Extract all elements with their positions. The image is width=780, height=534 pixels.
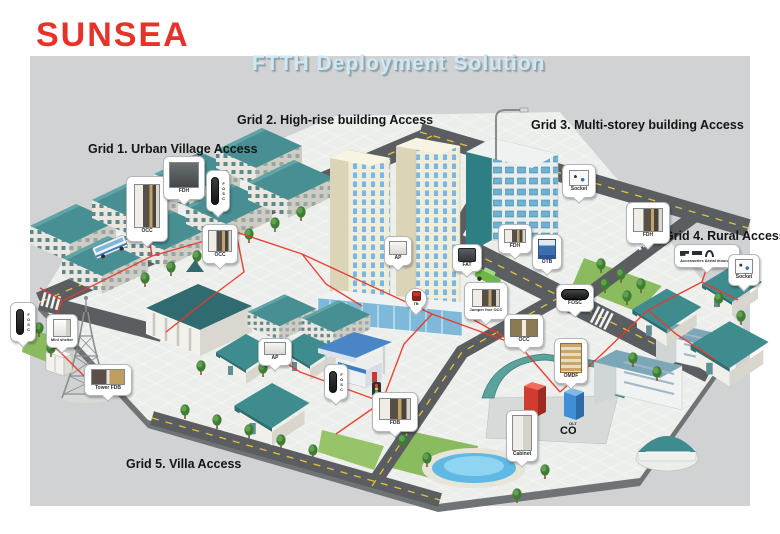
accessories-image — [680, 248, 734, 258]
callout-tb-highrise: TB — [405, 288, 427, 310]
callout-label: TB — [413, 302, 418, 306]
callout-label: OMDF — [564, 374, 579, 379]
callout-label: AP — [395, 256, 402, 261]
fdh-cabinet-image — [169, 162, 199, 188]
tower-fdb-image — [91, 369, 125, 385]
fosc-closure-image — [16, 309, 24, 335]
fdb-cabinet-image — [379, 398, 411, 420]
grid3-label: Grid 3. Multi-storey building Access — [531, 118, 744, 132]
grid1-label: Grid 1. Urban Village Access — [88, 142, 258, 156]
page-title: FTTH Deployment Solution — [252, 52, 545, 76]
occ-cabinet-image — [208, 230, 232, 252]
callout-label: FDH — [510, 244, 520, 249]
callout-occ-street: OCC — [202, 224, 238, 264]
callout-label: OCC — [214, 253, 225, 258]
callout-fosc-road: FOSC — [556, 284, 594, 312]
callout-socket-multistorey: Socket — [562, 164, 596, 198]
callout-otb-street: OTB — [532, 234, 562, 270]
callout-label: FAT — [462, 263, 471, 268]
callout-occ-village: OCC — [126, 176, 168, 242]
callout-fdh-street: FDH — [498, 224, 532, 254]
callout-label: Socket — [736, 275, 752, 280]
callout-fat-highrise: FAT — [452, 244, 482, 272]
socket-image — [569, 170, 589, 186]
callout-occ-co: OCC — [504, 314, 544, 348]
callout-jumper-free-occ: Jumper free OCC — [464, 282, 508, 320]
callout-label: OCC — [518, 338, 529, 343]
sunsea-logo: SUNSEA — [36, 16, 190, 56]
omdf-rack-image — [560, 343, 582, 373]
page: { "logo": { "text": "SUNSEA" }, "title":… — [0, 0, 780, 534]
callout-label: Mini shelter — [51, 338, 73, 342]
fat-box-image — [458, 248, 476, 262]
ap-box-image — [389, 241, 407, 255]
otb-image — [538, 239, 556, 259]
fdh-cabinet-image — [633, 208, 663, 232]
occ-cabinet-image — [472, 289, 500, 307]
callout-label: Cabinet — [513, 452, 531, 457]
shelter-image — [53, 319, 71, 337]
callout-label: Accessories Aerial mounted — [680, 259, 734, 263]
ap-box-image — [264, 342, 286, 355]
fosc-closure-image — [329, 371, 337, 393]
callout-ap-villa: AP — [258, 338, 292, 366]
callout-label: Tower FDB — [95, 386, 121, 391]
co-label: CO — [560, 425, 577, 437]
callout-label: Jumper free OCC — [470, 308, 503, 312]
callout-fosc-pole-village: FOSC — [206, 170, 230, 212]
fdh-cabinet-image — [504, 229, 526, 243]
callout-fosc-pole-left: FOSC — [10, 302, 36, 342]
callout-fdh-village: FDH — [163, 156, 205, 200]
callout-label: OTB — [542, 260, 553, 265]
terminal-box-image — [412, 291, 421, 301]
grid4-label: Grid 4. Rural Access — [664, 229, 780, 243]
callout-tower-fdb: Tower FDB — [84, 364, 132, 396]
callout-ap-highrise: AP — [384, 236, 412, 266]
callout-mini-shelter: Mini shelter — [46, 314, 78, 348]
callout-label: FOSC — [339, 372, 343, 392]
city-illustration — [0, 0, 780, 534]
callout-omdf-co: OMDF — [554, 338, 588, 384]
grid5-label: Grid 5. Villa Access — [126, 457, 241, 471]
callout-socket-rural: Socket — [728, 254, 760, 286]
callout-label: AP — [272, 356, 279, 361]
callout-label: FDH — [643, 233, 653, 238]
callout-fosc-pole-villa: FOSC — [324, 364, 348, 400]
callout-label: FOSC — [26, 312, 30, 332]
callout-label: OCC — [141, 229, 152, 234]
callout-fdb-villa: FDB — [372, 392, 418, 432]
grid2-label: Grid 2. High-rise building Access — [237, 113, 433, 127]
callout-label: FDB — [390, 421, 400, 426]
callout-label: FDH — [179, 189, 189, 194]
occ-cabinet-image — [510, 319, 538, 337]
callout-label: Socket — [571, 187, 587, 192]
cabinet-image — [512, 415, 532, 451]
callout-label: FOSC — [221, 181, 225, 201]
fosc-closure-image — [211, 177, 219, 205]
socket-image — [735, 259, 753, 274]
occ-cabinet-image — [134, 184, 160, 228]
callout-label: FOSC — [568, 301, 582, 306]
fosc-closure-image — [561, 289, 589, 300]
callout-cabinet-co: Cabinet — [506, 410, 538, 462]
callout-fdh-rural: FDH — [626, 202, 670, 244]
